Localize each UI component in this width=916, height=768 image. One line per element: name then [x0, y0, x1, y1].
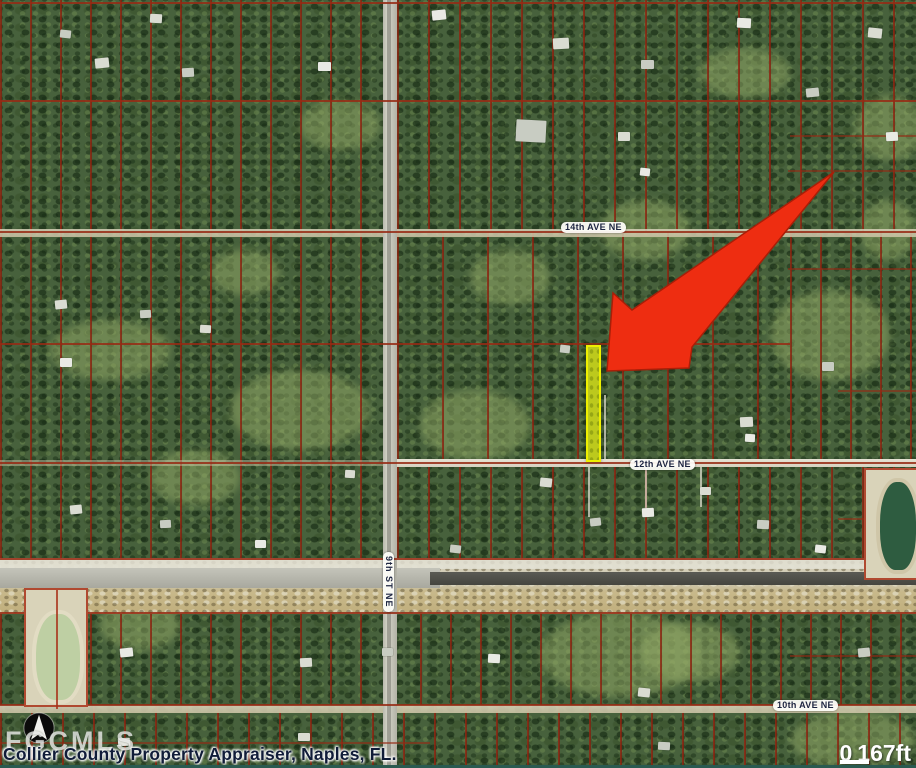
- scale-bar-line: [840, 760, 869, 764]
- house-rooftop: [641, 60, 654, 69]
- house-rooftop: [300, 658, 312, 668]
- house-rooftop: [640, 167, 651, 176]
- street-label-14th-ave: 14th AVE NE: [561, 222, 626, 233]
- house-rooftop: [182, 68, 194, 78]
- house-rooftop: [200, 325, 211, 334]
- house-rooftop: [318, 62, 331, 71]
- house-rooftop: [450, 544, 462, 553]
- house-rooftop: [150, 14, 162, 24]
- house-rooftop: [757, 520, 769, 530]
- street-label-10th-ave: 10th AVE NE: [773, 700, 838, 711]
- house-rooftop: [55, 299, 68, 309]
- aerial-map: 14th AVE NE 12th AVE NE 10th AVE NE 9th …: [0, 0, 916, 768]
- house-rooftop: [700, 487, 711, 495]
- house-rooftop: [822, 362, 834, 371]
- attribution-text: Collier County Property Appraiser, Naple…: [3, 744, 397, 765]
- street-label-12th-ave: 12th AVE NE: [630, 459, 695, 470]
- house-rooftop: [540, 477, 553, 487]
- house-rooftop: [382, 648, 393, 656]
- house-rooftop: [618, 132, 630, 141]
- house-rooftop: [815, 544, 827, 553]
- house-rooftop: [160, 520, 171, 529]
- house-rooftop: [140, 310, 151, 319]
- house-rooftop: [806, 87, 820, 97]
- house-rooftop: [515, 119, 546, 143]
- house-rooftop: [658, 742, 670, 751]
- scale-bar: 0 167ft: [840, 740, 912, 767]
- house-rooftop: [642, 508, 654, 518]
- house-rooftop: [60, 358, 72, 367]
- house-rooftop: [638, 687, 651, 697]
- house-rooftop: [560, 344, 571, 353]
- house-rooftop: [120, 647, 134, 657]
- house-rooftop: [655, 351, 668, 361]
- house-rooftop: [345, 470, 355, 479]
- house-rooftop: [432, 9, 447, 20]
- house-rooftop: [886, 132, 898, 142]
- house-rooftop: [590, 517, 602, 526]
- house-rooftop: [60, 29, 72, 38]
- house-rooftop: [553, 38, 570, 50]
- house-rooftop: [298, 733, 310, 741]
- house-rooftop: [255, 540, 266, 548]
- house-rooftop: [745, 434, 755, 443]
- house-rooftop: [95, 57, 110, 68]
- house-rooftop: [868, 27, 883, 38]
- house-rooftop: [858, 647, 871, 657]
- subject-parcel-highlight: [586, 345, 601, 462]
- house-rooftop: [737, 18, 752, 29]
- house-rooftop: [70, 504, 83, 514]
- house-rooftop: [488, 654, 500, 664]
- structures-layer: [0, 0, 916, 768]
- street-label-9th-st: 9th ST NE: [383, 552, 394, 612]
- house-rooftop: [740, 417, 754, 428]
